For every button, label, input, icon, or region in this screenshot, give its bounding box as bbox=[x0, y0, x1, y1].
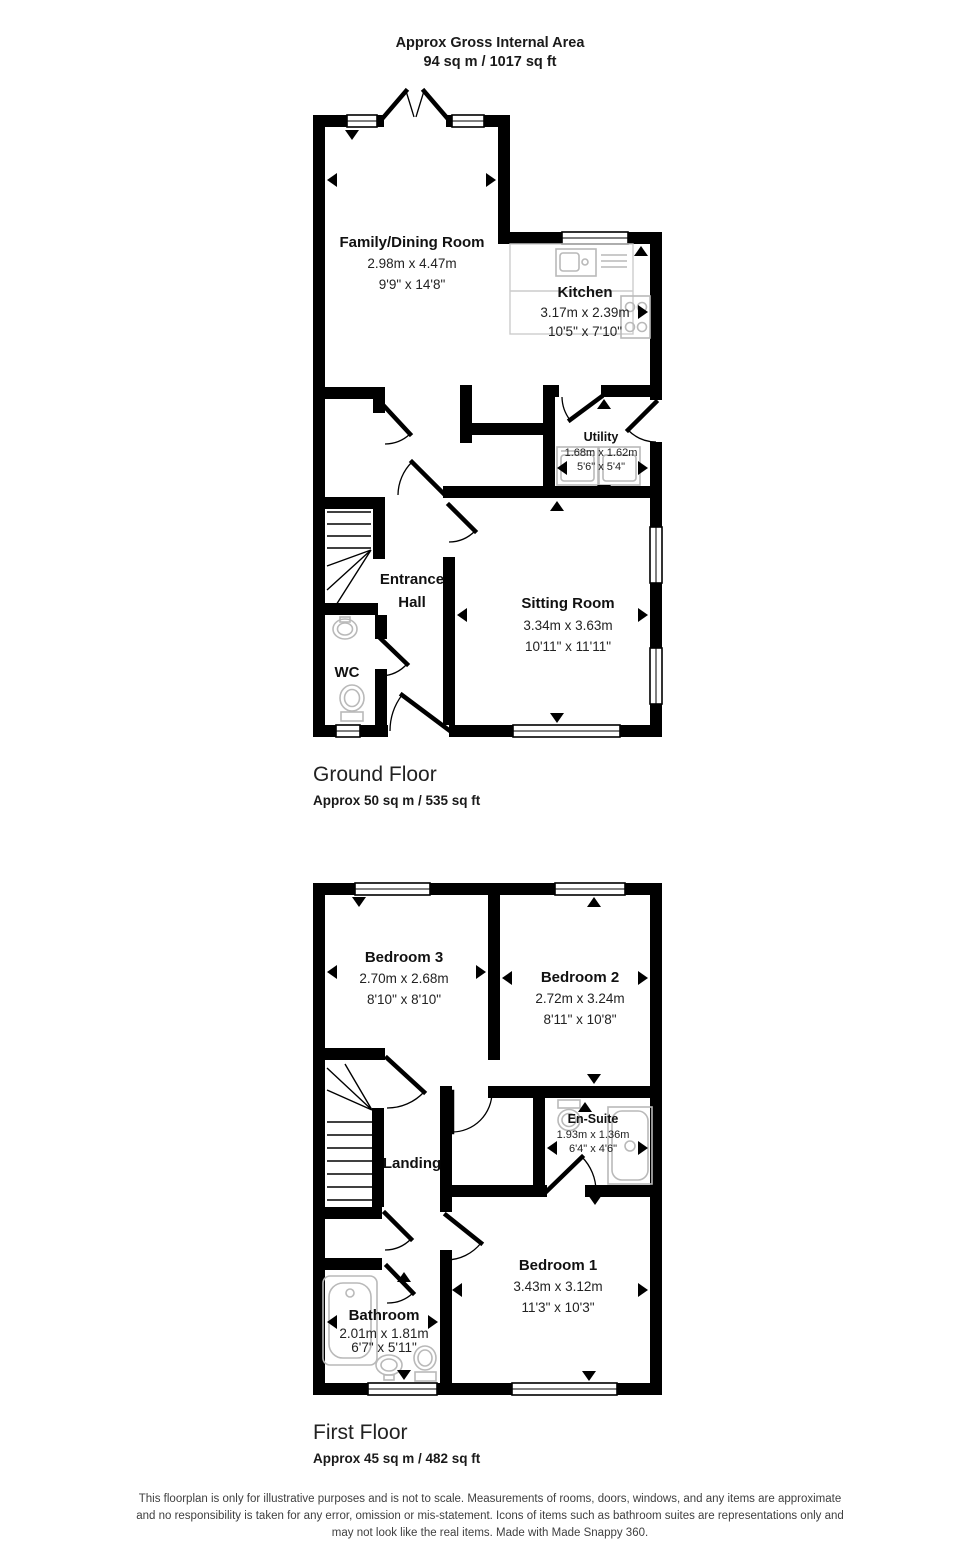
door-icon bbox=[398, 462, 445, 495]
measure-arrow-icon bbox=[557, 461, 567, 475]
window-icon bbox=[512, 1383, 617, 1395]
disclaimer: This floorplan is only for illustrative … bbox=[0, 1491, 980, 1542]
ground-floor-title: Ground Floor bbox=[313, 763, 480, 787]
room-metric-utility: 1.68m x 1.62m bbox=[565, 447, 638, 459]
room-name-ensuite: En-Suite bbox=[568, 1112, 619, 1126]
window-icon bbox=[562, 232, 628, 244]
measure-arrow-icon bbox=[550, 713, 564, 723]
door-icon bbox=[385, 1213, 411, 1250]
room-name-bedroom2: Bedroom 2 bbox=[541, 969, 619, 986]
measure-arrow-icon bbox=[588, 1195, 602, 1205]
measure-arrow-icon bbox=[587, 1074, 601, 1084]
window-icon bbox=[368, 1383, 437, 1395]
room-name-wc: WC bbox=[335, 664, 360, 681]
room-metric-bedroom1: 3.43m x 3.12m bbox=[513, 1279, 602, 1294]
measure-arrow-icon bbox=[476, 965, 486, 979]
window-icon bbox=[513, 725, 620, 737]
measure-arrow-icon bbox=[638, 1141, 648, 1155]
measure-arrow-icon bbox=[428, 1315, 438, 1329]
disclaimer-line-1: This floorplan is only for illustrative … bbox=[0, 1491, 980, 1508]
room-metric-bedroom2: 2.72m x 3.24m bbox=[535, 991, 624, 1006]
room-imperial-sitting: 10'11" x 11'11" bbox=[525, 639, 611, 654]
floorplan-page: Approx Gross Internal Area 94 sq m / 101… bbox=[0, 0, 980, 1554]
room-metric-ensuite: 1.93m x 1.36m bbox=[557, 1129, 630, 1141]
stairs-icon bbox=[327, 512, 371, 613]
window-icon bbox=[650, 648, 662, 704]
door-icon bbox=[452, 1092, 492, 1132]
room-metric-sitting: 3.34m x 3.63m bbox=[523, 618, 612, 633]
ground-floor-area: Approx 50 sq m / 535 sq ft bbox=[313, 793, 480, 808]
measure-arrow-icon bbox=[587, 897, 601, 907]
toilet-icon bbox=[414, 1346, 436, 1381]
toilet-icon bbox=[340, 685, 364, 721]
floorplan-drawing: Family/Dining Room 2.98m x 4.47m 9'9" x … bbox=[0, 0, 980, 1554]
measure-arrow-icon bbox=[327, 965, 337, 979]
room-imperial-bedroom2: 8'11" x 10'8" bbox=[543, 1012, 616, 1027]
measure-arrow-icon bbox=[638, 608, 648, 622]
room-name-entrance-hall-1: Entrance bbox=[380, 571, 444, 588]
measure-arrow-icon bbox=[638, 461, 648, 475]
first-floor-title: First Floor bbox=[313, 1421, 480, 1445]
room-name-landing: Landing bbox=[383, 1155, 441, 1172]
first-floor-area: Approx 45 sq m / 482 sq ft bbox=[313, 1451, 480, 1466]
window-icon bbox=[355, 883, 430, 895]
room-name-bedroom3: Bedroom 3 bbox=[365, 949, 443, 966]
french-doors-icon bbox=[382, 91, 448, 119]
measure-arrow-icon bbox=[486, 173, 496, 187]
ground-floor-doors bbox=[381, 91, 656, 731]
room-name-kitchen: Kitchen bbox=[557, 284, 612, 301]
window-icon bbox=[452, 115, 484, 127]
room-imperial-ensuite: 6'4" x 4'6" bbox=[569, 1143, 617, 1155]
measure-arrow-icon bbox=[582, 1371, 596, 1381]
ground-floor-plan: Family/Dining Room 2.98m x 4.47m 9'9" x … bbox=[313, 91, 662, 737]
room-imperial-bedroom1: 11'3" x 10'3" bbox=[521, 1300, 594, 1315]
first-floor-plan: Bedroom 3 2.70m x 2.68m 8'10" x 8'10" Be… bbox=[313, 883, 662, 1395]
room-imperial-utility: 5'6" x 5'4" bbox=[577, 461, 625, 473]
measure-arrow-icon bbox=[634, 246, 648, 256]
room-name-entrance-hall-2: Hall bbox=[398, 594, 426, 611]
ground-floor-caption: Ground Floor Approx 50 sq m / 535 sq ft bbox=[313, 763, 480, 808]
sink-icon bbox=[333, 617, 357, 639]
room-name-family-dining: Family/Dining Room bbox=[339, 234, 484, 251]
ground-floor-labels: Family/Dining Room 2.98m x 4.47m 9'9" x … bbox=[335, 234, 638, 681]
measure-arrow-icon bbox=[550, 501, 564, 511]
measure-arrow-icon bbox=[327, 173, 337, 187]
window-icon bbox=[347, 115, 377, 127]
door-icon bbox=[387, 1058, 424, 1108]
window-icon bbox=[555, 883, 625, 895]
room-metric-bedroom3: 2.70m x 2.68m bbox=[359, 971, 448, 986]
door-icon bbox=[562, 397, 601, 420]
window-icon bbox=[336, 725, 360, 737]
stairs-icon bbox=[327, 1064, 372, 1200]
measure-arrow-icon bbox=[397, 1370, 411, 1380]
measure-arrow-icon bbox=[547, 1141, 557, 1155]
door-icon bbox=[387, 1266, 413, 1303]
door-icon bbox=[385, 407, 410, 444]
window-icon bbox=[650, 527, 662, 583]
disclaimer-line-2: and no responsibility is taken for any e… bbox=[0, 1508, 980, 1525]
measure-arrow-icon bbox=[638, 971, 648, 985]
room-name-utility: Utility bbox=[584, 430, 619, 444]
measure-arrow-icon bbox=[352, 897, 366, 907]
room-imperial-bathroom: 6'7" x 5'11" bbox=[351, 1340, 417, 1355]
room-metric-kitchen: 3.17m x 2.39m bbox=[540, 305, 629, 320]
measure-arrow-icon bbox=[345, 130, 359, 140]
disclaimer-line-3: may not look like the real items. Made w… bbox=[0, 1525, 980, 1542]
room-metric-bathroom: 2.01m x 1.81m bbox=[339, 1326, 428, 1341]
room-imperial-kitchen: 10'5" x 7'10" bbox=[548, 324, 622, 339]
room-name-bedroom1: Bedroom 1 bbox=[519, 1257, 597, 1274]
measure-arrow-icon bbox=[638, 1283, 648, 1297]
room-imperial-bedroom3: 8'10" x 8'10" bbox=[367, 992, 441, 1007]
measure-arrow-icon bbox=[457, 608, 467, 622]
first-floor-caption: First Floor Approx 45 sq m / 482 sq ft bbox=[313, 1421, 480, 1466]
room-name-bathroom: Bathroom bbox=[349, 1307, 420, 1324]
sink-icon bbox=[376, 1355, 402, 1380]
measure-arrow-icon bbox=[452, 1283, 462, 1297]
kitchen-sink-icon bbox=[556, 249, 627, 276]
door-icon bbox=[449, 505, 475, 542]
measure-arrow-icon bbox=[502, 971, 512, 985]
room-name-sitting: Sitting Room bbox=[521, 595, 614, 612]
room-metric-family-dining: 2.98m x 4.47m bbox=[367, 256, 456, 271]
room-imperial-family-dining: 9'9" x 14'8" bbox=[379, 277, 446, 292]
